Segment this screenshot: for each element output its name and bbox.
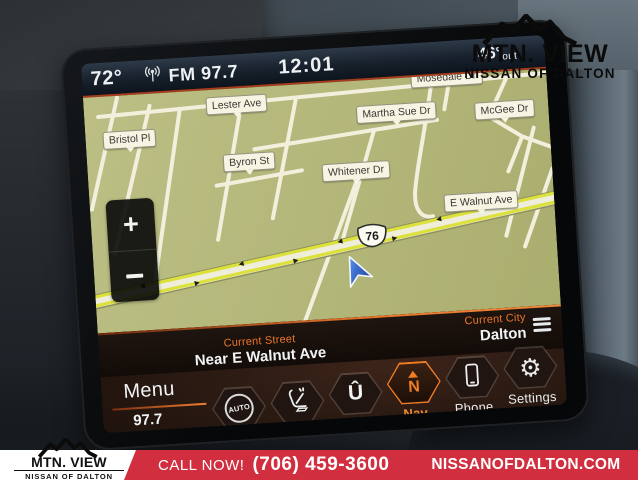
app-item-climate[interactable]: AUTO Climate <box>209 385 269 433</box>
app-item-apps[interactable]: Û Apps <box>326 371 386 433</box>
app-item-nav[interactable]: N Nav <box>384 360 444 422</box>
banner-dealer-sub: NISSAN OF DALTON <box>14 470 124 480</box>
app-item-settings[interactable]: ⚙ Settings <box>501 345 561 407</box>
menu-block: Menu 97.7 <box>111 376 210 431</box>
menu-button[interactable]: Menu <box>111 376 208 405</box>
current-city-value: Dalton <box>465 325 527 346</box>
app-item-phone[interactable]: Phone <box>443 354 503 416</box>
climate-auto-dial-icon: AUTO <box>222 391 256 425</box>
uconnect-u-icon: Û <box>347 381 364 406</box>
banner-contact: CALL NOW! (706) 459-3600 NISSANOFDALTON.… <box>158 450 621 480</box>
street-label: Byron St <box>223 151 276 172</box>
watermark-dealer-sub: NISSAN OF DALTON <box>444 67 636 82</box>
dealer-banner: MTN. VIEW NISSAN OF DALTON CALL NOW! (70… <box>0 450 638 480</box>
phone-icon <box>463 362 481 392</box>
now-playing-station: 97.7 <box>113 408 210 431</box>
clock: 12:01 <box>278 53 335 79</box>
mountain-logo-icon <box>38 438 98 458</box>
call-now-label: CALL NOW! <box>158 457 244 474</box>
radio-station: FM 97.7 <box>168 61 239 86</box>
dealer-phone-number: (706) 459-3600 <box>252 454 389 476</box>
watermark-dealer-name: MTN. VIEW <box>444 42 636 67</box>
gear-icon: ⚙ <box>518 354 542 380</box>
inside-temperature: 72° <box>90 66 123 91</box>
current-city-block: Current City Dalton <box>464 312 527 346</box>
uconnect-screen: 72° FM 97.7 12:01 <box>81 35 567 433</box>
zoom-in-button[interactable]: + <box>105 198 156 252</box>
menu-hamburger-icon[interactable] <box>532 314 553 334</box>
route-shield-number: 76 <box>365 229 380 244</box>
map-zoom-control: + <box>105 198 159 303</box>
app-item-controls[interactable]: Controls <box>268 379 328 433</box>
vehicle-position-arrow <box>339 251 373 287</box>
banner-dealer-logo: MTN. VIEW NISSAN OF DALTON <box>14 451 124 480</box>
street-label: Bristol Pl <box>102 129 156 150</box>
dealer-watermark: MTN. VIEW NISSAN OF DALTON <box>444 14 636 82</box>
dashboard-photo: 72° FM 97.7 12:01 <box>0 0 638 480</box>
infotainment-unit: 72° FM 97.7 12:01 <box>60 19 590 452</box>
compass-north-icon: N <box>407 370 420 396</box>
minus-icon <box>126 273 143 278</box>
street-label: McGee Dr <box>474 99 535 120</box>
navigation-map[interactable]: 76 Mosedale Dr Bristol Pl Lester Ave Byr… <box>83 69 561 334</box>
dealer-website: NISSANOFDALTON.COM <box>431 456 620 474</box>
broadcast-antenna-icon <box>143 65 162 88</box>
seat-controls-icon <box>283 386 311 419</box>
zoom-out-button[interactable] <box>109 249 160 302</box>
